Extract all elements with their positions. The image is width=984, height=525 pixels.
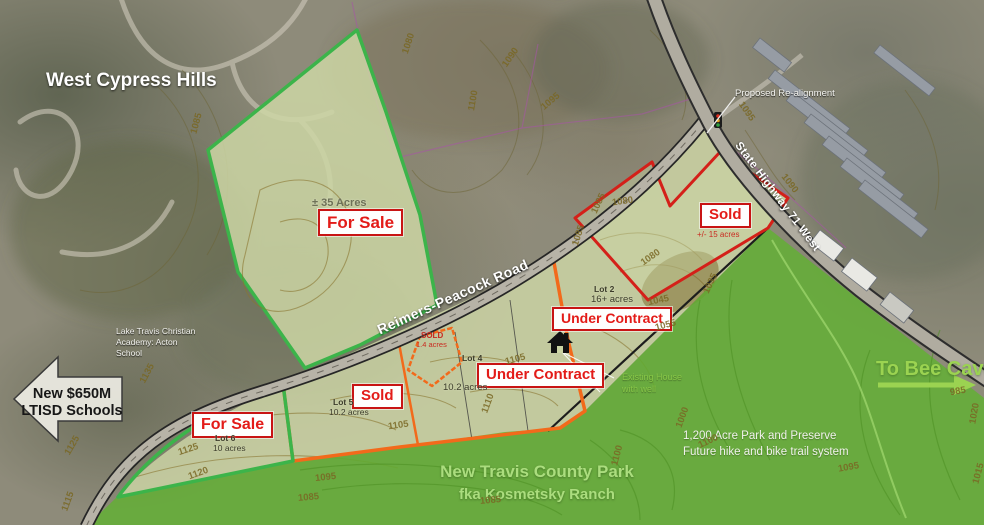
- county-park-title: New Travis County Park fka Kosmetsky Ran…: [437, 460, 637, 505]
- lot5-name: Lot 5: [333, 397, 353, 407]
- lot4-size: 10.2 acres: [443, 382, 487, 393]
- status-sold-lot5: Sold: [352, 384, 403, 409]
- school-line2: Academy: Acton: [116, 337, 195, 348]
- lot5-size: 10.2 acres: [329, 407, 369, 417]
- contour-label: 1095: [314, 471, 336, 484]
- status-under-contract-lot2: Under Contract: [552, 307, 672, 331]
- aerial-map: West Cypress Hills ± 35 Acres For Sale S…: [0, 0, 984, 525]
- lot6-size: 10 acres: [213, 443, 246, 453]
- status-under-contract-lot4: Under Contract: [477, 363, 604, 388]
- status-sold-east: Sold: [700, 203, 751, 228]
- contour-label: 1085: [480, 494, 502, 507]
- existing-house-line1: Existing House: [622, 372, 682, 384]
- school-line3: School: [116, 348, 195, 359]
- acreage-15: +/- 15 acres: [697, 230, 739, 239]
- lot2-name: Lot 2: [594, 284, 614, 294]
- school-line1: Lake Travis Christian: [116, 326, 195, 337]
- ltisd-line1: New $650M: [20, 386, 124, 403]
- county-park-line1: New Travis County Park: [437, 460, 637, 484]
- school-callout: Lake Travis Christian Academy: Acton Sch…: [116, 326, 195, 359]
- existing-house-label: Existing House with well: [622, 372, 682, 395]
- lot4-name: Lot 4: [462, 353, 482, 363]
- existing-house-line2: with well: [622, 384, 682, 396]
- ltisd-line2: LTISD Schools: [20, 403, 124, 420]
- region-title: West Cypress Hills: [46, 70, 217, 92]
- status-for-sale-north: For Sale: [318, 209, 403, 236]
- lot2-size: 16+ acres: [591, 294, 633, 305]
- contour-label: 1085: [298, 491, 320, 504]
- ltisd-arrow-text: New $650M LTISD Schools: [20, 386, 124, 419]
- county-park-line2: fka Kosmetsky Ranch: [437, 484, 637, 505]
- acreage-35: ± 35 Acres: [312, 197, 367, 209]
- proposed-realignment-label: Proposed Re-alignment: [735, 88, 835, 100]
- sold-small-label: SOLD: [421, 331, 443, 340]
- bee-cave-label: To Bee Cave: [876, 358, 984, 381]
- lot6-name: Lot 6: [215, 433, 235, 443]
- sold-small-acres: 1.4 acres: [416, 340, 447, 349]
